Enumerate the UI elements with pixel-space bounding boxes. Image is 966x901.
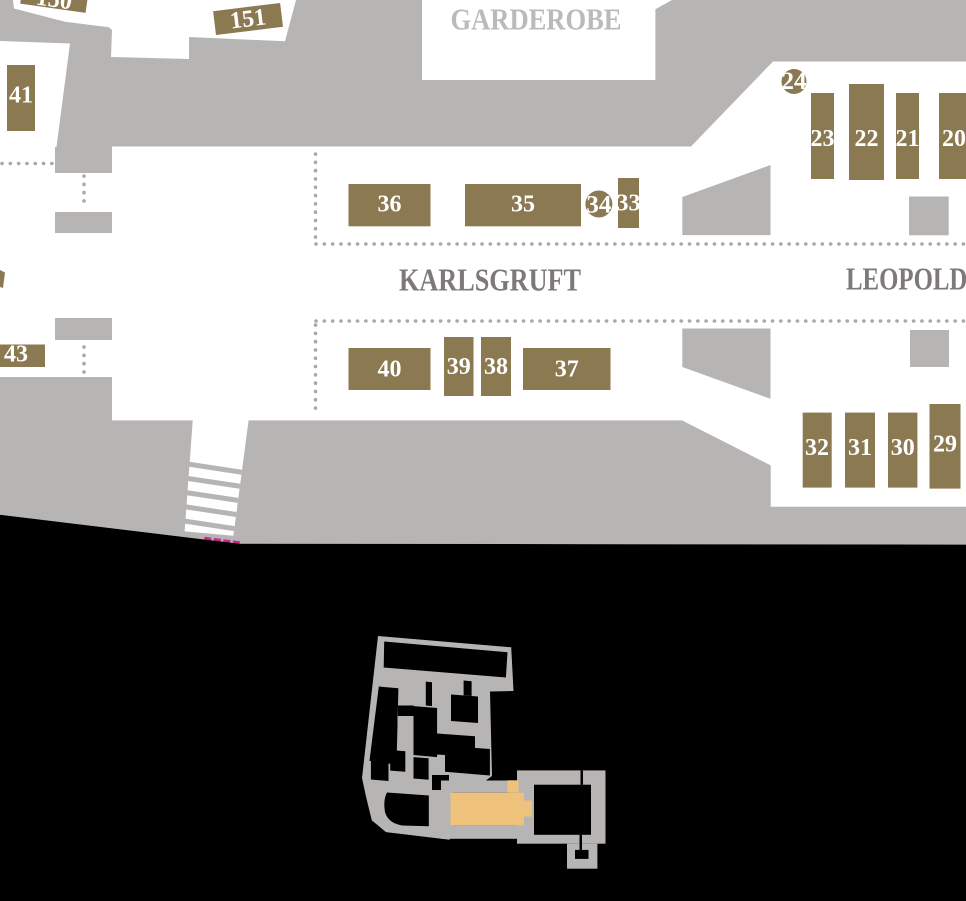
svg-text:40: 40 xyxy=(378,357,402,383)
svg-text:23: 23 xyxy=(811,126,835,152)
svg-text:LEOPOLDSGRUFT: LEOPOLDSGRUFT xyxy=(846,261,966,297)
svg-text:30: 30 xyxy=(891,435,915,461)
svg-text:GARDEROBE: GARDEROBE xyxy=(451,2,622,37)
svg-text:29: 29 xyxy=(933,432,957,458)
svg-text:32: 32 xyxy=(805,435,829,461)
svg-text:38: 38 xyxy=(484,354,508,380)
svg-text:36: 36 xyxy=(378,192,402,218)
svg-text:24: 24 xyxy=(782,68,808,95)
svg-text:39: 39 xyxy=(447,354,471,380)
svg-text:21: 21 xyxy=(896,126,920,152)
svg-text:34: 34 xyxy=(586,191,612,218)
svg-text:37: 37 xyxy=(555,357,579,383)
svg-text:KARLSGRUFT: KARLSGRUFT xyxy=(399,262,581,298)
svg-text:31: 31 xyxy=(848,435,872,461)
svg-text:20: 20 xyxy=(942,126,966,152)
svg-text:151: 151 xyxy=(229,4,268,34)
svg-text:33: 33 xyxy=(617,191,641,217)
svg-text:43: 43 xyxy=(4,341,28,367)
svg-text:35: 35 xyxy=(511,192,535,218)
svg-text:41: 41 xyxy=(9,83,33,109)
svg-text:22: 22 xyxy=(855,126,879,152)
